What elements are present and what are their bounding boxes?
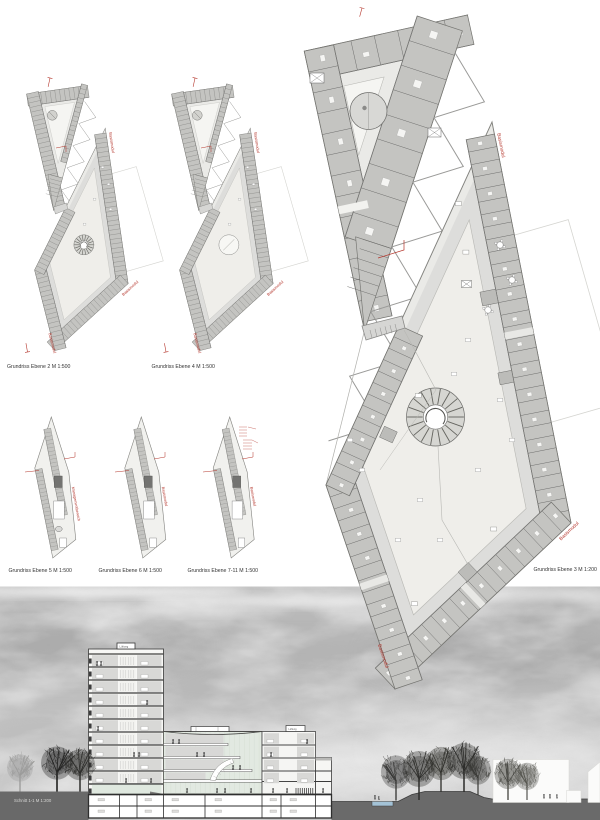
svg-text:Grundriss Ebene 7-11 M 1:500: Grundriss Ebene 7-11 M 1:500 — [188, 568, 259, 574]
svg-text:Grundriss Ebene 4 M 1:500: Grundriss Ebene 4 M 1:500 — [152, 364, 216, 370]
svg-text:Grundriss Ebene 3 M 1:200: Grundriss Ebene 3 M 1:200 — [534, 567, 598, 573]
svg-text:Grundriss Ebene 2 M 1:500: Grundriss Ebene 2 M 1:500 — [7, 364, 71, 370]
svg-text:Lüftung: Lüftung — [289, 728, 298, 731]
svg-text:Grundriss Ebene 5 M 1:500: Grundriss Ebene 5 M 1:500 — [9, 568, 73, 574]
svg-text:Schnitt 1-1 M 1:200: Schnitt 1-1 M 1:200 — [14, 798, 52, 803]
svg-text:Grundriss Ebene 6 M 1:500: Grundriss Ebene 6 M 1:500 — [99, 568, 163, 574]
svg-text:Lüftung: Lüftung — [120, 645, 129, 649]
